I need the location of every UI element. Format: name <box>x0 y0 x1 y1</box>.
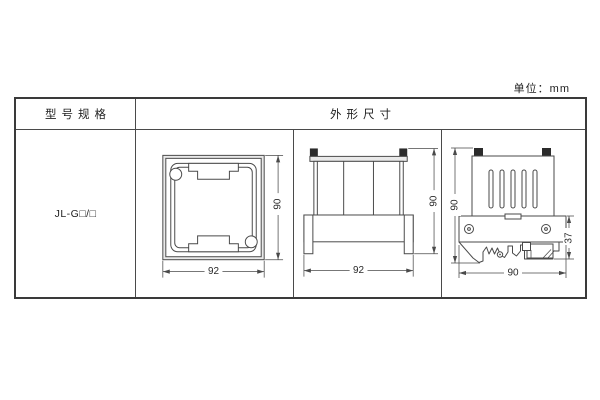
outline-dims-header: 外形尺寸 <box>136 99 585 129</box>
model-spec-header: 型号规格 <box>16 99 136 129</box>
side-view-drawing: 92 90 <box>294 130 441 297</box>
rail-width-label: 90 <box>507 268 519 279</box>
top-tab-right <box>542 148 551 156</box>
screw-hole-top-left <box>170 168 182 180</box>
unit-label: 单位：mm <box>514 80 570 96</box>
leg-right <box>404 215 413 254</box>
din-rail-clip <box>459 242 559 263</box>
top-tab-right <box>399 148 407 156</box>
side-view-cell: 92 90 <box>294 130 442 297</box>
table-header-row: 型号规格 外形尺寸 <box>16 99 585 130</box>
datasheet-page: 单位：mm 型号规格 外形尺寸 JL-G□/□ <box>0 0 600 400</box>
table-body-row: JL-G□/□ <box>16 130 585 297</box>
front-view-drawing: 92 90 <box>136 130 293 297</box>
top-tab-left <box>310 148 318 156</box>
rail-depth-label: 37 <box>564 232 575 244</box>
side-height-label: 90 <box>429 195 440 207</box>
screw-hole-bottom-right <box>245 236 257 248</box>
plate-notch <box>505 214 521 219</box>
model-value: JL-G□/□ <box>16 130 136 297</box>
front-height-label: 90 <box>273 198 284 210</box>
front-height-dimension: 90 <box>265 155 284 259</box>
front-view-cell: 92 90 <box>136 130 294 297</box>
spec-table: 型号规格 外形尺寸 JL-G□/□ <box>14 97 587 299</box>
front-width-dimension: 92 <box>163 261 264 278</box>
base <box>304 215 413 242</box>
leg-left <box>304 215 313 254</box>
front-width-label: 92 <box>208 266 220 277</box>
side-width-dimension: 92 <box>304 255 413 277</box>
front-view-body <box>163 155 264 259</box>
side-view-body <box>304 148 413 253</box>
rail-view-cell: 90 37 <box>442 130 582 297</box>
top-tab-left <box>474 148 483 156</box>
rail-height-label: 90 <box>450 199 461 211</box>
rail-view-body <box>459 148 566 263</box>
top-flange <box>310 156 407 161</box>
side-width-label: 92 <box>353 265 365 276</box>
rail-view-drawing: 90 37 <box>442 130 582 297</box>
